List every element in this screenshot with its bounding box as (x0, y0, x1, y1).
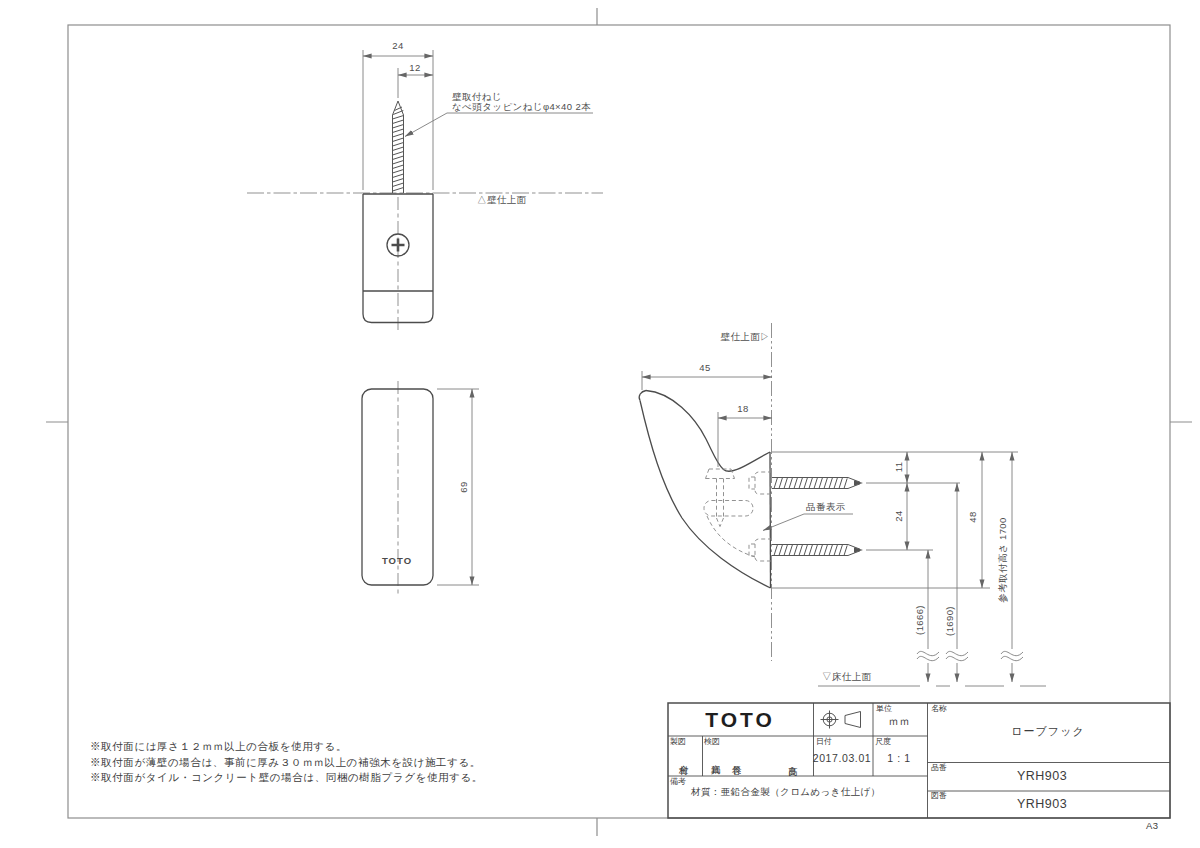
phillips-cross-icon (392, 239, 405, 252)
name-label: 名称 (931, 705, 947, 713)
date-value: 2017.03.01 (813, 753, 872, 764)
screw-note-line2: なべ頭タッピンねじφ4×40 2本 (452, 102, 591, 112)
checker-name-3: 高良 (788, 758, 798, 759)
checker-name-1: 真鍋 (711, 758, 721, 759)
toto-logo-on-part: TOTO (382, 556, 412, 566)
front-view-screw (393, 101, 404, 193)
product-number-value: YRH903 (1017, 770, 1067, 783)
date-label: 日付 (816, 738, 832, 746)
side-view-hook (639, 391, 770, 589)
dim-front-half: 12 (409, 63, 420, 73)
lower-wall-screw (749, 539, 863, 561)
dim-offset: 18 (737, 404, 748, 414)
unit-value: ｍｍ (888, 716, 910, 727)
drafter-name: 金村 (679, 758, 689, 759)
dim-screw-pitch: 24 (894, 510, 904, 521)
note-line-3: ※取付面がタイル・コンクリート壁の場合は、同梱の樹脂プラグを使用する。 (90, 772, 483, 783)
checker-label: 検図 (704, 738, 720, 746)
drawing-linework (0, 0, 1200, 848)
dim-front-width: 24 (392, 41, 403, 51)
toto-logo: TOTO (705, 709, 775, 730)
drafter-label: 製図 (670, 738, 686, 746)
remarks-value: 材質：亜鉛合金製（クロムめっき仕上げ） (691, 787, 881, 797)
projection-symbol-icon (821, 711, 861, 729)
dim-floor-to-lower-screw: (1666) (915, 605, 925, 635)
product-name-value: ローブフック (1011, 726, 1084, 737)
dim-depth: 45 (699, 363, 710, 373)
sheet-frame (46, 8, 1192, 836)
dim-floor-to-upper-screw: (1690) (945, 606, 955, 636)
upper-wall-screw (749, 472, 863, 494)
dim-top-to-screw: 11 (894, 462, 904, 473)
remarks-label: 備考 (670, 778, 686, 786)
dim-body-height: 69 (459, 481, 469, 492)
scale-label: 尺度 (875, 738, 891, 746)
floor-surface-label: ▽床仕上面 (822, 672, 872, 682)
drawing-number-value: YRH903 (1017, 798, 1067, 811)
wall-surface-label-front: △壁仕上面 (477, 195, 527, 205)
note-line-2: ※取付面が薄壁の場合は、事前に厚み３０ｍｍ以上の補強木を設け施工する。 (90, 757, 481, 768)
dim-hook-height: 48 (968, 511, 978, 522)
drawing-sheet: 24 12 壁取付ねじ なべ頭タッピンねじφ4×40 2本 △壁仕上面 TOTO… (0, 0, 1200, 848)
product-number-label: 品番 (931, 764, 947, 772)
reference-mount-height: 参考取付高さ 1700 (998, 517, 1008, 602)
note-line-1: ※取付面には厚さ１２ｍｍ以上の合板を使用する。 (90, 741, 347, 752)
unit-label: 単位 (876, 705, 892, 713)
scale-value: 1 : 1 (887, 753, 910, 764)
wall-surface-label-side: 壁仕上面▷ (721, 332, 771, 342)
reference-lines (247, 193, 772, 661)
side-view-hidden-lines (704, 469, 755, 557)
sheet-size-label: A3 (1146, 821, 1158, 831)
part-number-indicator-label: 品番表示 (806, 502, 846, 512)
checker-name-2: 長谷 (732, 758, 742, 759)
drawing-number-label: 図番 (931, 792, 947, 800)
